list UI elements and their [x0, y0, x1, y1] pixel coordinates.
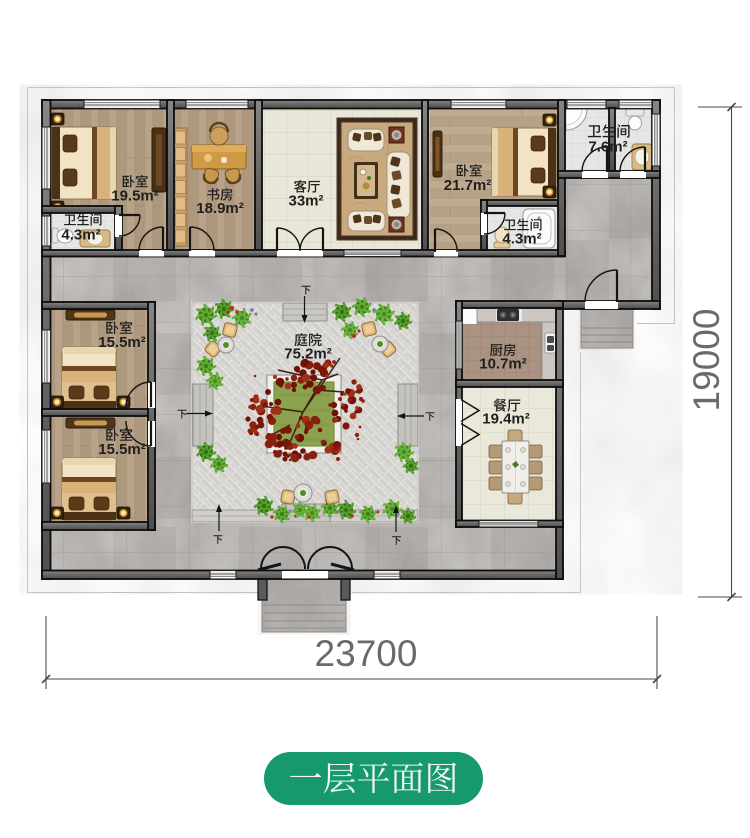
svg-text:21.7m²: 21.7m² [444, 177, 492, 194]
svg-text:7.6m²: 7.6m² [588, 139, 627, 156]
svg-text:23700: 23700 [315, 633, 418, 674]
svg-text:19.5m²: 19.5m² [111, 188, 159, 205]
svg-text:4.3m²: 4.3m² [61, 227, 100, 244]
svg-text:19.4m²: 19.4m² [482, 411, 530, 428]
svg-text:15.5m²: 15.5m² [98, 441, 146, 458]
svg-text:4.3m²: 4.3m² [502, 231, 541, 248]
svg-text:15.5m²: 15.5m² [98, 334, 146, 351]
svg-text:75.2m²: 75.2m² [284, 346, 332, 363]
svg-text:19000: 19000 [686, 309, 727, 412]
svg-text:18.9m²: 18.9m² [196, 200, 244, 217]
svg-text:10.7m²: 10.7m² [479, 356, 527, 373]
svg-text:33m²: 33m² [288, 193, 323, 210]
